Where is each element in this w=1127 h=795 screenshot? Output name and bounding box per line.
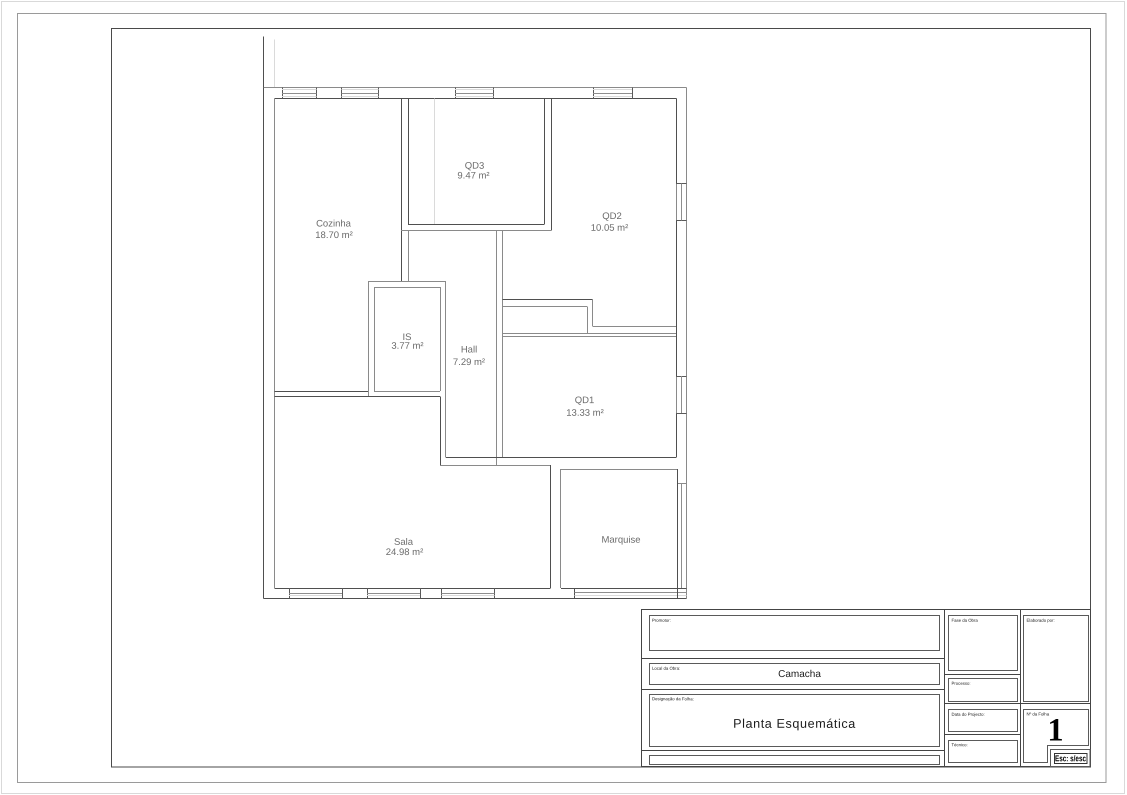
svg-text:10.05 m²: 10.05 m² (591, 223, 629, 234)
svg-text:Local da Obra:: Local da Obra: (652, 666, 680, 671)
svg-text:Camacha: Camacha (778, 669, 821, 680)
svg-text:Técnico:: Técnico: (951, 742, 967, 747)
svg-text:9.47 m²: 9.47 m² (457, 170, 489, 181)
svg-text:Nº da Folha: Nº da Folha (1026, 712, 1049, 717)
svg-text:Processo:: Processo: (951, 681, 970, 686)
svg-text:Data do Projecto:: Data do Projecto: (951, 712, 984, 717)
svg-text:Elaborado por:: Elaborado por: (1026, 618, 1054, 623)
svg-text:QD1: QD1 (575, 395, 595, 406)
svg-text:Designação da Folha:: Designação da Folha: (652, 696, 694, 701)
svg-text:24.98 m²: 24.98 m² (386, 547, 424, 558)
svg-text:Fase da Obra: Fase da Obra (951, 618, 978, 623)
svg-text:QD2: QD2 (602, 211, 622, 222)
svg-text:Cozinha: Cozinha (316, 218, 352, 229)
svg-text:3.77 m²: 3.77 m² (391, 341, 423, 352)
svg-text:Planta Esquemática: Planta Esquemática (733, 717, 856, 731)
svg-text:Esc: s/esc: Esc: s/esc (1055, 753, 1086, 763)
svg-text:7.29 m²: 7.29 m² (453, 357, 485, 368)
svg-text:Hall: Hall (461, 344, 477, 355)
svg-text:13.33 m²: 13.33 m² (566, 408, 604, 419)
svg-text:Marquise: Marquise (601, 535, 640, 546)
svg-text:18.70 m²: 18.70 m² (315, 230, 353, 241)
svg-text:1: 1 (1047, 712, 1063, 748)
svg-text:Promotor:: Promotor: (652, 618, 671, 623)
